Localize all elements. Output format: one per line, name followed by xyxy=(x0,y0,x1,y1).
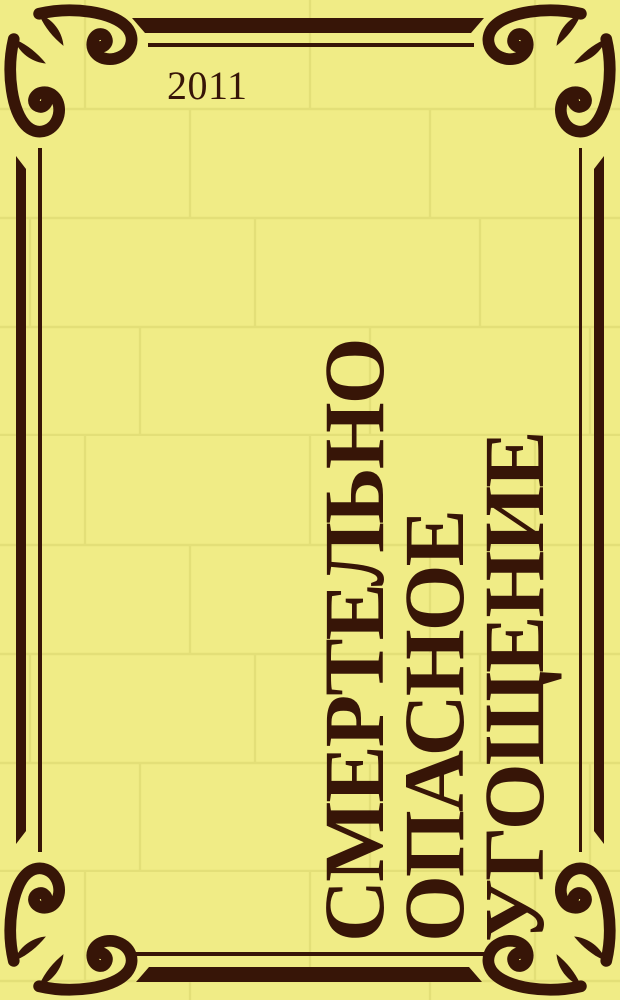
frame-right-bar xyxy=(594,156,604,844)
frame-left-thin-line xyxy=(38,148,42,852)
frame-left-bar xyxy=(16,156,26,844)
frame-right-thin-line xyxy=(579,148,583,852)
frame-bottom-thin-line xyxy=(132,952,488,956)
corner-flourish-top-right-icon xyxy=(460,4,616,160)
publication-year: 2011 xyxy=(167,66,248,106)
frame-bottom-bar xyxy=(136,967,482,982)
book-title: СМЕРТЕЛЬНО ОПАСНОЕ УГОЩЕНИЕ xyxy=(314,342,554,942)
title-line-1: СМЕРТЕЛЬНО xyxy=(314,342,394,942)
corner-flourish-top-left-icon xyxy=(4,4,160,160)
frame-top-thin-line xyxy=(148,43,474,47)
title-line-2: ОПАСНОЕ xyxy=(394,342,474,942)
book-cover: 2011 СМЕРТЕЛЬНО ОПАСНОЕ УГОЩЕНИЕ xyxy=(0,0,620,1000)
corner-flourish-bottom-left-icon xyxy=(4,840,160,996)
title-line-3: УГОЩЕНИЕ xyxy=(474,342,554,942)
frame-top-bar xyxy=(132,18,484,33)
